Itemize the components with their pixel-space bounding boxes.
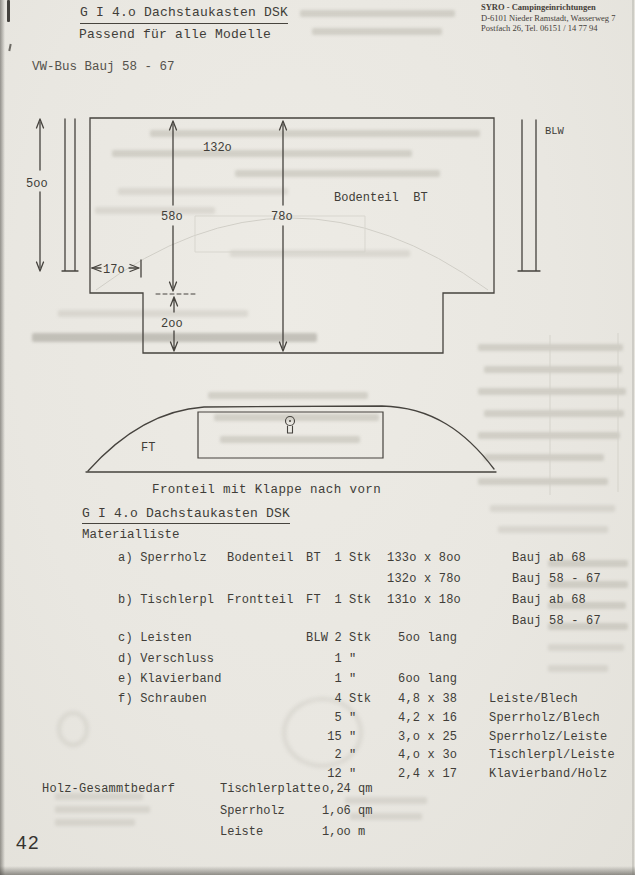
page-subtitle: Passend für alle Modelle bbox=[79, 27, 271, 42]
scan-artifact-dash bbox=[7, 0, 10, 22]
stamp-line: SYRO - Campingeinrichtungen bbox=[481, 2, 633, 13]
material-section-subtitle: Materialliste bbox=[82, 528, 180, 542]
vehicle-model-label: VW-Bus Bauj 58 - 67 bbox=[32, 60, 175, 74]
dimension-label-780: 78o bbox=[271, 210, 293, 224]
supplier-stamp: SYRO - Campingeinrichtungen D-6101 Niede… bbox=[481, 2, 633, 34]
strip-label-blw: BLW bbox=[545, 125, 565, 137]
bodenteil-part-label: Bodenteil BT bbox=[334, 191, 428, 205]
fronteil-part-label: FT bbox=[141, 441, 155, 455]
dimension-label-580: 58o bbox=[161, 210, 183, 224]
fronteil-drawing bbox=[86, 406, 496, 472]
stamp-line: Postfach 26, Tel. 06151 / 14 77 94 bbox=[481, 23, 633, 34]
dimension-label-200: 2oo bbox=[161, 317, 183, 331]
scan-edge-shadow-left bbox=[0, 0, 5, 875]
scan-edge-shadow-right bbox=[632, 0, 634, 875]
stamp-line: D-6101 Nieder Ramstadt, Wasserweg 7 bbox=[481, 13, 633, 24]
bleedthrough-lines bbox=[96, 216, 618, 495]
scan-edge-shadow-bottom bbox=[0, 866, 635, 875]
scanned-document-page: 5oo 132o 58o 78o 17o 2oo Bodenteil BT BL… bbox=[0, 0, 635, 875]
dimension-label-500: 5oo bbox=[26, 177, 48, 191]
fronteil-caption: Fronteil mit Klappe nach vorn bbox=[152, 483, 381, 497]
dimension-label-170: 17o bbox=[103, 263, 125, 277]
bodenteil-drawing bbox=[37, 118, 541, 353]
page-title: G I 4.o Dachstaukasten DSK bbox=[80, 5, 288, 24]
dimension-label-1320: 132o bbox=[203, 141, 232, 155]
totals-heading: Holz-Gesammtbedarf bbox=[42, 782, 175, 796]
page-number: 42 bbox=[16, 832, 40, 854]
technical-drawing: 5oo 132o 58o 78o 17o 2oo Bodenteil BT BL… bbox=[0, 0, 635, 875]
material-section-title: G I 4.o Dachstaukasten DSK bbox=[82, 506, 290, 524]
